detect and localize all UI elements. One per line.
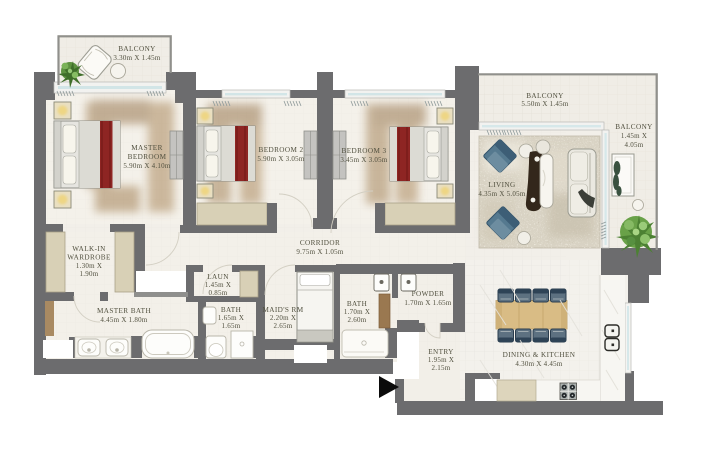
svg-text:3.30m X 1.45m: 3.30m X 1.45m [113, 54, 161, 62]
svg-text:LIVING: LIVING [488, 181, 515, 189]
svg-text:0.85m: 0.85m [209, 289, 228, 297]
svg-text:BALCONY: BALCONY [118, 45, 156, 53]
svg-text:MAID'S RM: MAID'S RM [262, 306, 303, 314]
svg-text:BATH: BATH [347, 300, 367, 308]
svg-text:1.70m X: 1.70m X [344, 308, 370, 316]
svg-text:1.30m X: 1.30m X [76, 262, 102, 270]
svg-text:BEDROOM: BEDROOM [128, 153, 167, 161]
svg-text:MASTER BATH: MASTER BATH [97, 307, 151, 315]
svg-text:4.30m X 4.45m: 4.30m X 4.45m [515, 360, 563, 368]
svg-text:POWDER: POWDER [412, 290, 445, 298]
svg-text:9.75m X 1.05m: 9.75m X 1.05m [296, 248, 344, 256]
svg-text:BEDROOM 2: BEDROOM 2 [259, 146, 304, 154]
svg-text:WALK-IN: WALK-IN [72, 245, 106, 253]
svg-text:1.45m X: 1.45m X [621, 132, 647, 140]
svg-text:5.90m X 4.10m: 5.90m X 4.10m [123, 162, 171, 170]
svg-text:BEDROOM 3: BEDROOM 3 [342, 147, 387, 155]
svg-text:1.70m X 1.65m: 1.70m X 1.65m [404, 299, 452, 307]
svg-text:1.90m: 1.90m [80, 270, 99, 278]
svg-text:2.15m: 2.15m [432, 364, 451, 372]
svg-text:5.90m X 3.05m: 5.90m X 3.05m [257, 155, 305, 163]
svg-text:BALCONY: BALCONY [615, 123, 653, 131]
svg-text:2.20m X: 2.20m X [270, 314, 296, 322]
svg-text:BALCONY: BALCONY [526, 92, 564, 100]
svg-text:4.45m X 1.80m: 4.45m X 1.80m [100, 316, 148, 324]
svg-text:CORRIDOR: CORRIDOR [300, 239, 340, 247]
svg-text:1.95m X: 1.95m X [428, 356, 454, 364]
svg-text:4.05m: 4.05m [625, 141, 644, 149]
svg-text:DINING & KITCHEN: DINING & KITCHEN [503, 351, 576, 359]
svg-text:4.35m X 5.05m: 4.35m X 5.05m [478, 190, 526, 198]
svg-text:5.50m X 1.45m: 5.50m X 1.45m [521, 100, 569, 108]
svg-text:1.65m: 1.65m [222, 322, 241, 330]
svg-text:1.65m X: 1.65m X [218, 314, 244, 322]
svg-text:MASTER: MASTER [131, 144, 163, 152]
svg-text:2.60m: 2.60m [348, 316, 367, 324]
svg-text:3.45m X 3.05m: 3.45m X 3.05m [340, 156, 388, 164]
svg-text:WARDROBE: WARDROBE [67, 254, 111, 262]
svg-text:2.65m: 2.65m [274, 322, 293, 330]
svg-text:BATH: BATH [221, 306, 241, 314]
svg-text:1.45m X: 1.45m X [205, 281, 231, 289]
svg-text:ENTRY: ENTRY [428, 348, 454, 356]
svg-text:LAUN: LAUN [207, 273, 229, 281]
